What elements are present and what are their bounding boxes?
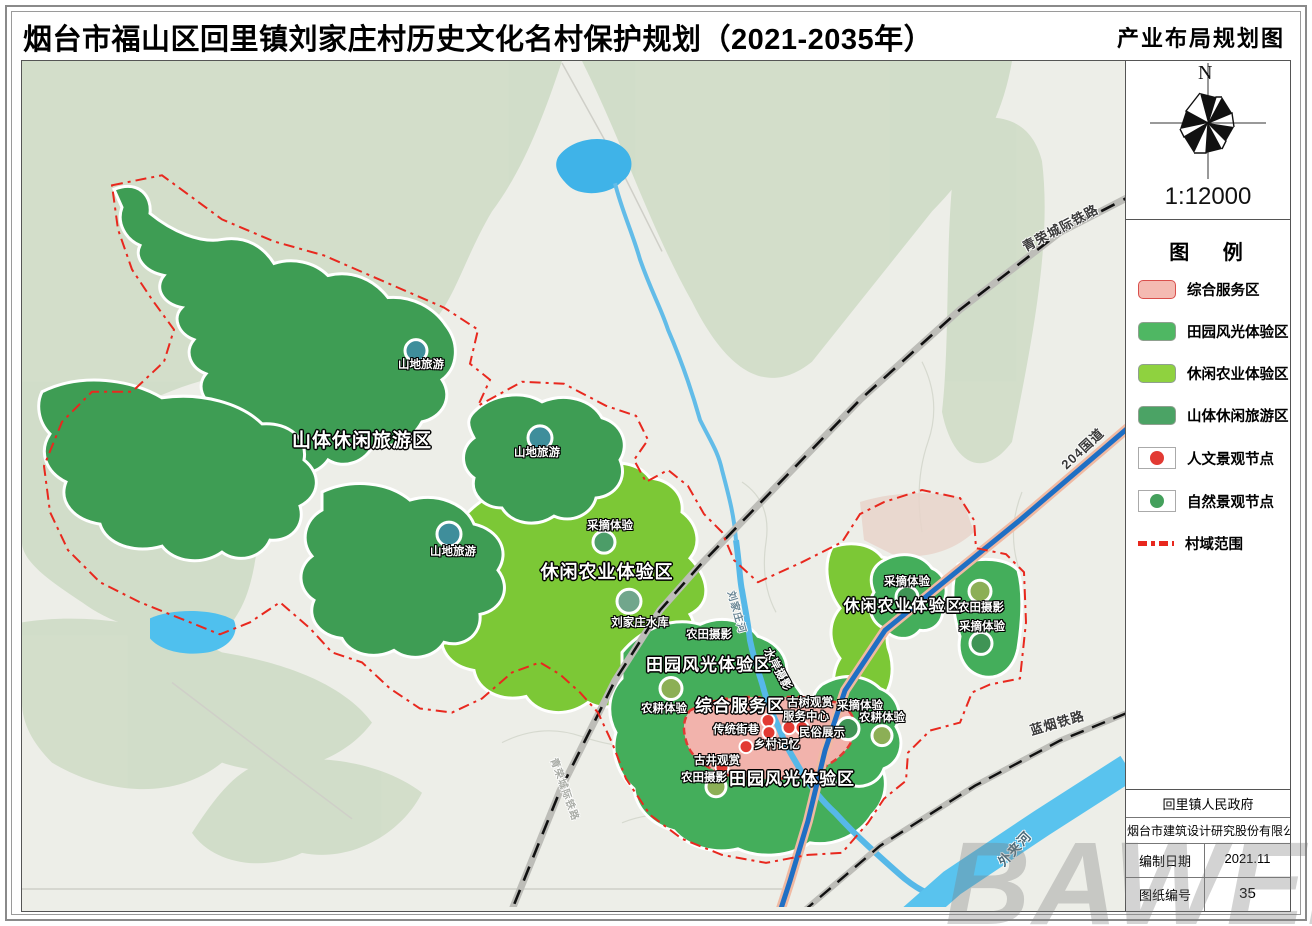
legend-item-boundary: 村域范围 <box>1138 533 1278 554</box>
nature-node <box>837 718 859 740</box>
date-label: 编制日期 <box>1126 844 1205 877</box>
culture-node <box>716 761 729 774</box>
north-arrow-box: N 1:12000 <box>1126 61 1290 220</box>
design-company-name: 烟台市建筑设计研究股份有限公司 <box>1126 818 1290 843</box>
map-scale: 1:12000 <box>1126 183 1290 211</box>
legend-node-dot <box>1150 494 1164 508</box>
north-arrow-icon: N <box>1126 61 1290 181</box>
legend-zone-swatch <box>1138 406 1176 425</box>
legend-label: 综合服务区 <box>1187 279 1260 300</box>
plan-sheet: 烟台市福山区回里镇刘家庄村历史文化名村保护规划（2021-2035年） 产业布局… <box>0 0 1312 926</box>
title-bar: 烟台市福山区回里镇刘家庄村历史文化名村保护规划（2021-2035年） 产业布局… <box>21 14 1291 60</box>
legend-item-zone: 山体休闲旅游区 <box>1138 405 1278 426</box>
legend-label: 休闲农业体验区 <box>1187 363 1289 384</box>
page-title: 烟台市福山区回里镇刘家庄村历史文化名村保护规划（2021-2035年） <box>23 16 933 58</box>
legend: 图 例 综合服务区田园风光体验区休闲农业体验区山体休闲旅游区人文景观节点自然景观… <box>1126 220 1290 789</box>
legend-label: 人文景观节点 <box>1187 448 1274 469</box>
legend-zone-swatch <box>1138 364 1176 383</box>
nature-node <box>617 589 641 613</box>
culture-node <box>783 721 796 734</box>
nature-node <box>593 531 615 553</box>
legend-item-zone: 综合服务区 <box>1138 279 1278 300</box>
map-base-art <box>22 61 1125 907</box>
legend-zone-swatch <box>1138 280 1176 299</box>
north-letter: N <box>1198 62 1212 84</box>
legend-label: 自然景观节点 <box>1187 491 1274 512</box>
sheet-number-label: 图纸编号 <box>1126 878 1205 911</box>
legend-item-zone: 田园风光体验区 <box>1138 321 1278 342</box>
nature-node <box>706 777 726 797</box>
info-table: 回里镇人民政府 烟台市建筑设计研究股份有限公司 编制日期 2021.11 图纸编… <box>1126 789 1290 911</box>
sidebar: N 1:12000 图 例 综合服务区田园风光体验区休闲农业体验区山体休闲旅游区… <box>1125 61 1290 911</box>
legend-node-box <box>1138 447 1176 469</box>
legend-boundary-line <box>1138 541 1174 546</box>
culture-node <box>796 721 809 734</box>
culture-node <box>763 726 776 739</box>
culture-node <box>762 714 775 727</box>
legend-item-node: 人文景观节点 <box>1138 447 1278 469</box>
nature-node <box>872 726 892 746</box>
nature-node <box>969 580 991 602</box>
legend-node-dot <box>1150 451 1164 465</box>
legend-label: 村域范围 <box>1185 533 1243 554</box>
legend-node-box <box>1138 490 1176 512</box>
legend-zone-swatch <box>1138 322 1176 341</box>
nature-node <box>405 340 427 362</box>
map-name: 产业布局规划图 <box>1117 21 1285 53</box>
legend-item-zone: 休闲农业体验区 <box>1138 363 1278 384</box>
legend-item-node: 自然景观节点 <box>1138 490 1278 512</box>
nature-node <box>660 677 682 699</box>
sheet-number-value: 35 <box>1205 878 1290 911</box>
legend-label: 田园风光体验区 <box>1187 321 1289 342</box>
nature-node <box>896 586 918 608</box>
legend-label: 山体休闲旅游区 <box>1187 405 1289 426</box>
culture-node <box>740 740 753 753</box>
nature-node <box>528 426 552 450</box>
nature-node <box>970 632 992 654</box>
legend-title: 图 例 <box>1148 236 1278 265</box>
nature-node <box>437 522 461 546</box>
drawing-area: 山体休闲旅游区休闲农业体验区田园风光体验区综合服务区休闲农业体验区田园风光体验区… <box>21 60 1291 912</box>
map-canvas: 山体休闲旅游区休闲农业体验区田园风光体验区综合服务区休闲农业体验区田园风光体验区… <box>22 61 1125 911</box>
authority-name: 回里镇人民政府 <box>1126 790 1290 817</box>
date-value: 2021.11 <box>1205 844 1290 877</box>
